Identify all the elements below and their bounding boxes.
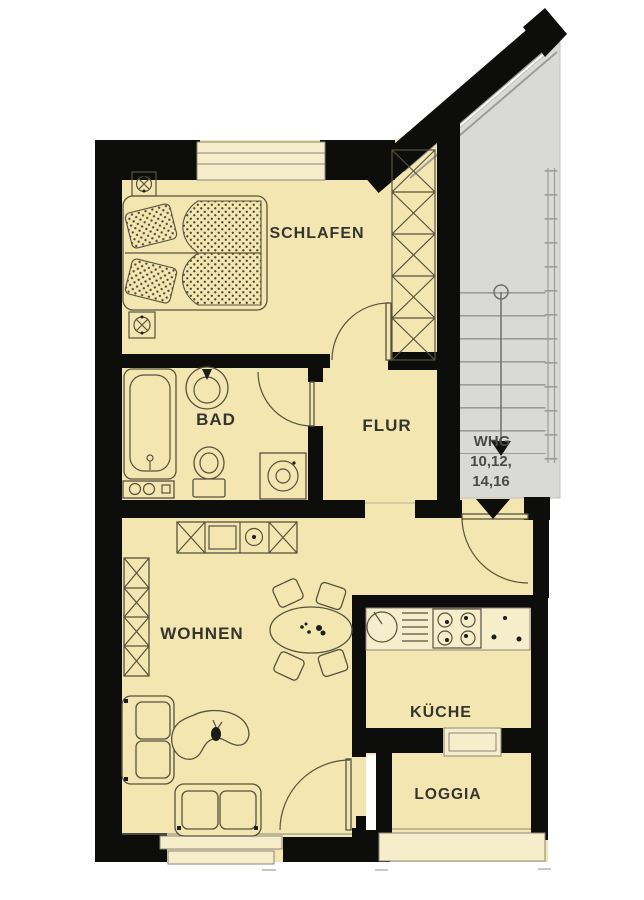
- whg-line-3: 14,16: [472, 473, 510, 490]
- bathroom-vanity: [123, 481, 174, 498]
- bathtub: [124, 369, 176, 479]
- kitchen-counter: [366, 608, 530, 650]
- toilet: [193, 447, 225, 497]
- bed: [123, 196, 267, 310]
- room-label-loggia: LOGGIA: [414, 786, 481, 803]
- dimension-ticks: [262, 869, 551, 870]
- sideboard: [177, 522, 297, 553]
- room-label-bad: BAD: [196, 410, 236, 429]
- room-label-flur: FLUR: [362, 416, 411, 435]
- whg-line-1: WHG: [474, 433, 511, 450]
- tall-cabinet: [124, 558, 149, 676]
- whg-line-2: 10,12,: [470, 453, 512, 470]
- room-label-kueche: KÜCHE: [410, 702, 472, 721]
- loggia-parapet: [379, 829, 545, 861]
- washbasin: [186, 367, 228, 409]
- room-label-wohnen: WOHNEN: [160, 624, 243, 643]
- stairwell-apartment-numbers: WHG 10,12, 14,16: [470, 433, 512, 490]
- room-label-schlafen: SCHLAFEN: [269, 225, 364, 242]
- floorplan-drawing: SCHLAFEN BAD FLUR WOHNEN KÜCHE LOGGIA WH…: [0, 0, 644, 900]
- washing-machine: [260, 453, 306, 499]
- kitchen-loggia-window: [444, 728, 501, 756]
- sofa-two-seat-left: [122, 696, 174, 784]
- bedroom-window: [197, 142, 325, 180]
- sofa-two-seat-bottom: [175, 784, 261, 836]
